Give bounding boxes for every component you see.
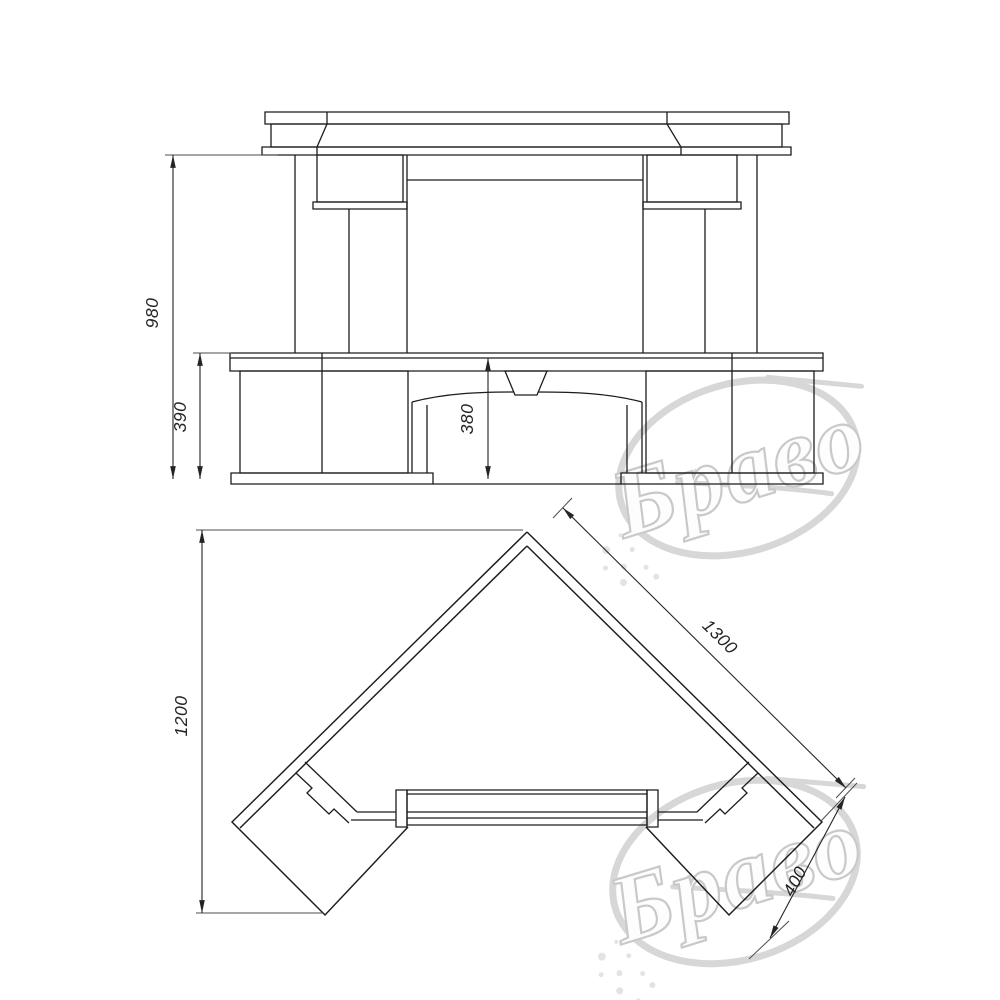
dimension-label-390: 390 xyxy=(170,402,190,433)
dimension-1300: 1300 xyxy=(553,498,855,798)
dimension-label-1200: 1200 xyxy=(171,696,191,737)
dimension-label-980: 980 xyxy=(142,298,162,329)
corbel-right xyxy=(643,155,741,209)
hearth-bench-shelf xyxy=(230,353,823,371)
dimension-980: 980 xyxy=(142,155,278,479)
mantel-shelf-cornice xyxy=(262,112,791,155)
watermark-text: Браво xyxy=(595,786,875,964)
watermark-text: Браво xyxy=(598,380,878,558)
plan-return-face-left xyxy=(296,762,396,823)
dimension-label-380: 380 xyxy=(457,404,477,435)
drawing-page: Браво Браво xyxy=(0,0,1000,1000)
dimension-label-1300: 1300 xyxy=(699,615,742,658)
plan-return-face-right xyxy=(658,762,758,823)
dimension-390: 390 xyxy=(170,353,231,479)
corbel-left xyxy=(313,155,407,209)
plan-front-portal xyxy=(396,790,658,827)
top-plan-view: 1200 1300 400 xyxy=(171,498,857,959)
watermark-stamp-lower: Браво xyxy=(556,745,908,1000)
pedestal-left xyxy=(231,371,433,484)
dimension-380: 380 xyxy=(457,358,488,479)
technical-drawing-canvas: Браво Браво xyxy=(0,0,1000,1000)
pilasters-and-opening xyxy=(295,155,757,353)
